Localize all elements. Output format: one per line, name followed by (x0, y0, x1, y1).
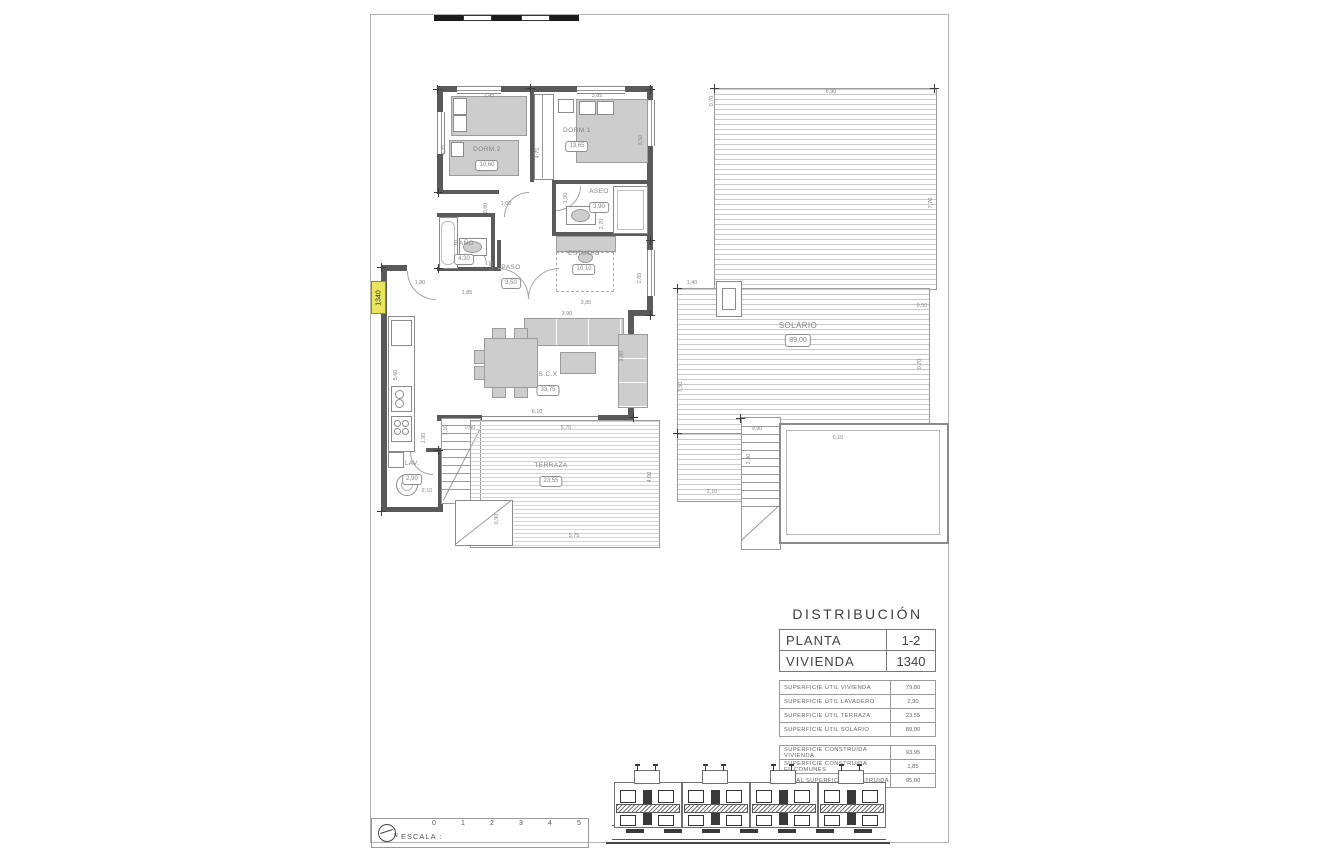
dimension-label: 2,80 (489, 261, 495, 272)
chimney-cap (771, 764, 776, 766)
room-name: DORM.1 (563, 127, 591, 134)
room-label: TERRAZA23,55 (534, 462, 567, 487)
window (794, 815, 810, 826)
vent (854, 829, 872, 833)
roof-bulkhead (770, 770, 796, 784)
balcony-railing (820, 804, 884, 813)
window (756, 790, 772, 803)
shower-tray (617, 190, 644, 230)
unit-number: 1340 (375, 290, 382, 306)
wall-segment (437, 190, 499, 194)
dimension-label: 2,30 (746, 454, 752, 465)
scale-tick: 5 (577, 820, 581, 827)
window (726, 790, 742, 803)
window (688, 815, 704, 826)
section-tick (377, 507, 386, 516)
section-tick (433, 85, 442, 94)
sink-bowl (395, 390, 404, 399)
dimension-label: 2,65 (637, 273, 643, 284)
room-area-value: 4,30 (454, 254, 474, 265)
dimension-label: 6,10 (532, 409, 543, 415)
dimension-label: 7,70 (928, 198, 934, 209)
coffee-table (560, 352, 596, 374)
dimension-label: 3,90 (562, 311, 573, 317)
elevation-ground-line (606, 842, 890, 844)
sink (571, 209, 590, 222)
built-surface-value: 93,95 (890, 746, 935, 759)
vent (702, 829, 720, 833)
useful-surface-value: 23,55 (890, 709, 935, 722)
balcony-railing (616, 804, 680, 813)
dimension-label: 6,10 (833, 435, 844, 441)
room-label: ASEO3,90 (589, 188, 609, 213)
roof-bulkhead (702, 770, 728, 784)
planta-vivienda-table: PLANTA1-2VIVIENDA1340 (779, 629, 936, 672)
chair (492, 387, 506, 398)
chair (474, 366, 485, 380)
dimension-label: 1,10 (443, 425, 449, 436)
dimension-label: 0,70 (917, 359, 923, 370)
room-area-value: 10,60 (475, 160, 498, 171)
wall-segment (381, 507, 443, 512)
dimension-label: 0,90 (465, 425, 476, 431)
scale-tick: 0 (432, 820, 436, 827)
bathtub-basin (441, 221, 455, 265)
useful-surface-value: 89,00 (890, 723, 935, 736)
stair-treads (742, 426, 780, 514)
section-tick (434, 188, 443, 197)
useful-surface-table: SUPERFICIE ÚTIL VIVIENDA79,80SUPERFICIE … (779, 680, 936, 737)
window (726, 815, 742, 826)
vent (664, 829, 682, 833)
useful-surface-value: 2,90 (890, 695, 935, 708)
window-symbol (647, 250, 655, 296)
sofa (618, 334, 648, 408)
dimension-label: 3,85 (592, 93, 603, 99)
burner (402, 420, 409, 427)
dimension-label: 2,10 (422, 488, 433, 494)
dimension-label: 5,75 (569, 533, 580, 539)
chimney-cap (703, 764, 708, 766)
chimney-cap (653, 764, 658, 766)
doorway (643, 813, 652, 825)
section-tick (930, 84, 939, 93)
scale-bar: N ESCALA : (371, 818, 589, 848)
window (862, 815, 878, 826)
planta-vivienda-value: 1340 (886, 651, 935, 671)
dimension-label: 5,60 (393, 370, 399, 381)
room-name: LAV. (402, 460, 422, 467)
planta-vivienda-label: VIVIENDA (780, 654, 886, 669)
section-tick (377, 263, 386, 272)
dimension-label: 7,50 (678, 382, 684, 393)
lower-roof-inner (786, 430, 940, 535)
room-name: SOLARIO (779, 322, 817, 329)
chimney-cap (789, 764, 794, 766)
dimension-label: 4,35 (441, 145, 447, 156)
chimney-cap (839, 764, 844, 766)
window (688, 790, 704, 803)
stair-landing (455, 500, 513, 546)
room-area-value: 2,90 (402, 474, 422, 485)
useful-surface-row: SUPERFICIE ÚTIL VIVIENDA79,80 (780, 681, 935, 695)
burner (402, 428, 409, 435)
section-tick (673, 429, 682, 438)
chair (514, 328, 528, 339)
scale-segment (463, 15, 492, 21)
pillow (597, 101, 614, 115)
room-label: PASO3,50 (501, 264, 521, 289)
doorway (711, 790, 720, 804)
scale-segment (521, 15, 550, 21)
chair (514, 387, 528, 398)
dimension-label: 0,90 (752, 426, 763, 432)
built-surface-label: SUPERFICIE CONSTRUIDA VIVIENDA (780, 747, 890, 759)
north-label: N (394, 833, 398, 839)
section-tick (646, 85, 655, 94)
planta-vivienda-label: PLANTA (780, 633, 886, 648)
dimension-label: 0,60 (483, 203, 489, 214)
pillow (453, 115, 467, 132)
dimension-label: 3,85 (581, 300, 592, 306)
doorway (711, 813, 720, 825)
section-tick (710, 84, 719, 93)
useful-surface-label: SUPERFICIE ÚTIL TERRAZA (780, 713, 890, 719)
scale-tick: 1 (461, 820, 465, 827)
window (794, 790, 810, 803)
room-name: ASEO (589, 188, 609, 195)
dimension-label: 2,10 (707, 489, 718, 495)
planta-vivienda-row: VIVIENDA1340 (780, 651, 935, 672)
room-area-value: 3,90 (589, 202, 609, 213)
solario-deck (677, 288, 930, 435)
pillow (453, 98, 467, 115)
built-surface-value: 95,80 (890, 774, 935, 787)
section-tick (526, 84, 535, 93)
scale-segment (550, 15, 579, 21)
useful-surface-row: SUPERFICIE ÚTIL SOLARIO89,00 (780, 723, 935, 737)
window (862, 790, 878, 803)
doorway (847, 813, 856, 825)
closet (534, 94, 554, 180)
dimension-label: 2,45 (484, 93, 495, 99)
useful-surface-label: SUPERFICIE ÚTIL LAVADERO (780, 699, 890, 705)
section-tick (646, 236, 655, 245)
dimension-label: 1,80 (415, 280, 426, 286)
nightstand (558, 99, 574, 113)
built-surface-value: 1,85 (890, 760, 935, 773)
closet-rail (542, 94, 543, 178)
room-area-value: 23,55 (539, 476, 562, 487)
scale-segment (492, 15, 521, 21)
scale-tick: 2 (490, 820, 494, 827)
section-tick (736, 414, 745, 423)
planta-vivienda-row: PLANTA1-2 (780, 630, 935, 651)
window (658, 815, 674, 826)
dimension-label: 3,80 (619, 351, 625, 362)
pillow (579, 101, 596, 115)
dining-table (484, 338, 538, 388)
built-surface-row: SUPERFICIE CONSTRUIDA VIVIENDA93,95 (780, 746, 935, 760)
dimension-label: 5,70 (561, 425, 572, 431)
skylight-inner (722, 288, 736, 310)
dimension-label: 1,95 (421, 433, 427, 444)
section-tick (629, 413, 638, 422)
window (824, 790, 840, 803)
room-name: TERRAZA (534, 462, 567, 469)
doorway (643, 790, 652, 804)
room-label: LAV.2,90 (402, 460, 422, 485)
burner (394, 420, 401, 427)
wall-segment (552, 180, 652, 184)
room-label: ESTUDIO10,10 (568, 250, 600, 275)
useful-surface-row: SUPERFICIE ÚTIL LAVADERO2,90 (780, 695, 935, 709)
room-area-value: 3,50 (501, 278, 521, 289)
window-symbol (457, 86, 501, 94)
room-area-value: 89,00 (785, 334, 811, 347)
room-label: BAÑO4,30 (454, 240, 474, 265)
section-tick (673, 284, 682, 293)
roof-bulkhead (634, 770, 660, 784)
scale-tick: 3 (519, 820, 523, 827)
planta-vivienda-value: 1-2 (886, 630, 935, 650)
solario-stairs (741, 417, 781, 550)
dimension-label: 1,50 (563, 193, 569, 204)
dimension-label: 4,00 (647, 472, 653, 483)
distribution-panel: DISTRIBUCIÓN PLANTA1-2VIVIENDA1340 SUPER… (779, 606, 936, 788)
chair (492, 328, 506, 339)
sink-bowl (395, 399, 404, 408)
building-elevation (604, 768, 892, 852)
room-name: DORM.2 (473, 146, 501, 153)
chimney-cap (635, 764, 640, 766)
section-tick (434, 446, 443, 455)
dimension-label: 1,85 (462, 290, 473, 296)
scale-tick: 4 (548, 820, 552, 827)
room-name: ESTUDIO (568, 250, 600, 257)
burner (394, 428, 401, 435)
room-name: S.C.X (536, 371, 559, 378)
window-symbol (647, 100, 655, 146)
room-area-value: 13,65 (565, 141, 588, 152)
vent (816, 829, 834, 833)
room-area-value: 10,10 (572, 264, 595, 275)
sofa (524, 318, 624, 346)
vent (778, 829, 796, 833)
room-name: BAÑO (454, 240, 474, 247)
chimney-cap (857, 764, 862, 766)
dimension-label: 0,70 (709, 96, 715, 107)
room-label: DORM.113,65 (563, 127, 591, 152)
solario-deck (714, 88, 937, 290)
window (824, 815, 840, 826)
dimension-label: 3,50 (638, 135, 644, 146)
window (620, 790, 636, 803)
roof-bulkhead (838, 770, 864, 784)
useful-surface-label: SUPERFICIE ÚTIL VIVIENDA (780, 685, 890, 691)
vent (740, 829, 758, 833)
dimension-label: 2,70 (599, 219, 605, 230)
dimension-label: 1,00 (501, 201, 512, 207)
fridge (391, 320, 412, 346)
balcony-railing (684, 804, 748, 813)
room-label: SOLARIO89,00 (779, 322, 817, 347)
balcony-railing (752, 804, 816, 813)
useful-surface-row: SUPERFICIE ÚTIL TERRAZA23,55 (780, 709, 935, 723)
dimension-label: 6,90 (826, 89, 837, 95)
doorway (779, 790, 788, 804)
section-tick (646, 311, 655, 320)
dimension-label: 1,40 (687, 280, 698, 286)
drawing-sheet: 1340 DORM.210,60DORM.113,65ASEO3,90BAÑO4… (0, 0, 1320, 859)
chair (474, 350, 485, 364)
distribution-title: DISTRIBUCIÓN (779, 606, 936, 622)
pillow (451, 142, 464, 157)
vent (626, 829, 644, 833)
useful-surface-label: SUPERFICIE ÚTIL SOLARIO (780, 727, 890, 733)
window (620, 815, 636, 826)
window (756, 815, 772, 826)
doorway (847, 790, 856, 804)
room-name: PASO (501, 264, 521, 271)
room-label: S.C.X33,75 (536, 371, 559, 396)
window (658, 790, 674, 803)
useful-surface-value: 79,80 (890, 681, 935, 694)
scale-segment (434, 15, 463, 21)
scale-label: ESCALA : (401, 832, 442, 841)
dimension-label: 0,90 (494, 514, 500, 525)
unit-number-tag: 1340 (371, 281, 386, 314)
doorway (779, 813, 788, 825)
dimension-label: 0,50 (917, 303, 928, 309)
section-tick (434, 264, 443, 273)
room-area-value: 33,75 (536, 385, 559, 396)
chimney-cap (721, 764, 726, 766)
room-label: DORM.210,60 (473, 146, 501, 171)
dimension-label: 4,75 (535, 148, 541, 159)
